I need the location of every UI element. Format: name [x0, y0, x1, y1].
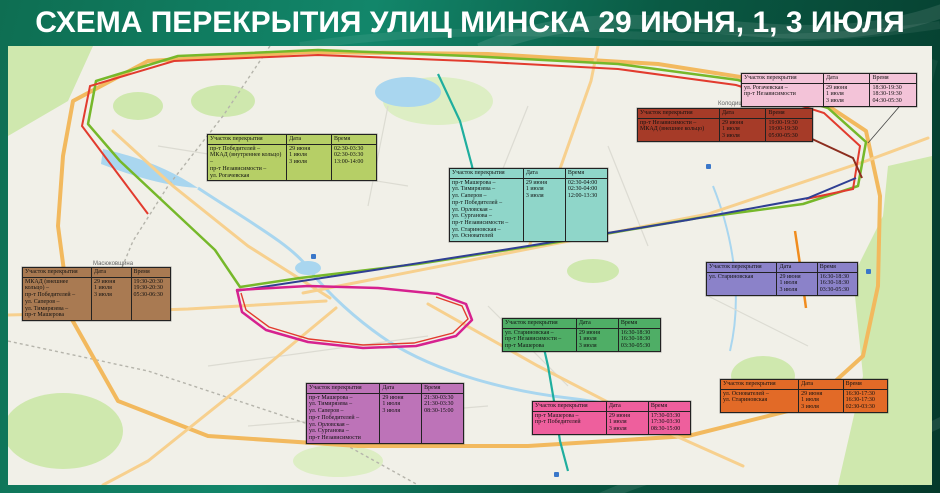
col-header-date: Дата [287, 135, 332, 145]
park-area [293, 445, 383, 477]
title-bar: СХЕМА ПЕРЕКРЫТИЯ УЛИЦ МИНСКА 29 ИЮНЯ, 1,… [0, 0, 940, 46]
col-header-section: Участок перекрытия [707, 263, 777, 273]
forest-area [8, 46, 93, 136]
closure-table-masherova-pobediteley: Участок перекрытия Дата Время пр-т Машер… [532, 401, 691, 435]
closure-streets: ул. Стариновская – пр-т Независимости – … [503, 328, 577, 351]
col-header-time: Время [332, 135, 377, 145]
col-header-section: Участок перекрытия [208, 135, 287, 145]
park-area [191, 85, 255, 117]
street-line [708, 296, 808, 346]
closure-dates: 29 июня 1 июля 3 июля [576, 328, 618, 351]
col-header-time: Время [817, 263, 857, 273]
closure-table-starinovskaya-nezavisimosti-masherova: Участок перекрытия Дата Время ул. Старин… [502, 318, 661, 352]
col-header-section: Участок перекрытия [742, 74, 824, 84]
closure-dates: 29 июня 1 июля 3 июля [92, 277, 131, 320]
col-header-section: Участок перекрытия [638, 109, 720, 119]
col-header-date: Дата [576, 319, 618, 329]
closure-dates: 29 июня 1 июля 3 июля [523, 178, 565, 241]
col-header-time: Время [648, 402, 690, 412]
col-header-time: Время [766, 109, 813, 119]
closure-times: 16:30-18:30 16:30-18:30 03:30-05:30 [817, 272, 857, 295]
closure-streets: пр-т Машерова – ул. Тимирязева – ул. Сап… [450, 178, 524, 241]
closure-table-osnovateley-starinovskaya: Участок перекрытия Дата Время ул. Основа… [720, 379, 888, 413]
closure-table-masherova-inner-ring: Участок перекрытия Дата Время пр-т Машер… [306, 383, 464, 444]
col-header-time: Время [843, 380, 887, 390]
park-area [113, 92, 163, 120]
route-red-inner-ring [241, 293, 468, 345]
closure-dates: 29 июня 1 июля 3 июля [777, 272, 817, 295]
col-header-time: Время [565, 169, 607, 179]
forest-area [838, 156, 932, 485]
closure-dates: 29 июня 1 июля 3 июля [799, 389, 843, 412]
station-icon [866, 269, 871, 274]
closure-streets: пр-т Независимости – МКАД (внешнее кольц… [638, 118, 720, 141]
closure-times: 16:30-17:30 16:30-17:30 02:30-03:30 [843, 389, 887, 412]
col-header-date: Дата [92, 268, 131, 278]
closure-dates: 29 июня 1 июля 3 июля [606, 411, 648, 434]
infographic-canvas: СХЕМА ПЕРЕКРЫТИЯ УЛИЦ МИНСКА 29 ИЮНЯ, 1,… [0, 0, 940, 493]
col-header-time: Время [422, 384, 464, 394]
station-icon [706, 164, 711, 169]
closure-table-masherova-full-route: Участок перекрытия Дата Время пр-т Машер… [449, 168, 608, 242]
closure-times: 17:30-03:30 17:30-03:30 08:30-15:00 [648, 411, 690, 434]
station-icon [311, 254, 316, 259]
closure-times: 21:30-03:30 21:30-03:30 08:30-15:00 [422, 393, 464, 443]
page-title: СХЕМА ПЕРЕКРЫТИЯ УЛИЦ МИНСКА 29 ИЮНЯ, 1,… [35, 6, 905, 40]
closure-table-mkad-outer-masherova: Участок перекрытия Дата Время МКАД (внеш… [22, 267, 171, 321]
col-header-section: Участок перекрытия [307, 384, 380, 394]
col-header-date: Дата [799, 380, 843, 390]
closure-times: 02:30-03:30 02:30-03:30 13:00-14:00 [332, 144, 377, 181]
closure-streets: МКАД (внешнее кольцо) – пр-т Победителей… [23, 277, 92, 320]
station-icon [554, 472, 559, 477]
col-header-date: Дата [523, 169, 565, 179]
closure-dates: 29 июня 1 июля 3 июля [823, 83, 870, 106]
col-header-date: Дата [606, 402, 648, 412]
park-area [567, 259, 619, 283]
reservoir [375, 77, 441, 107]
closure-table-pobediteley-mkad-inner: Участок перекрытия Дата Время пр-т Побед… [207, 134, 377, 181]
col-header-date: Дата [380, 384, 422, 394]
col-header-date: Дата [719, 109, 766, 119]
water-areas [101, 77, 684, 431]
closure-table-nezavisimosti-mkad-outer: Участок перекрытия Дата Время пр-т Незав… [637, 108, 813, 142]
closure-streets: ул. Стариновская [707, 272, 777, 295]
closure-streets: пр-т Машерова – ул. Тимирязева – ул. Сап… [307, 393, 380, 443]
closure-times: 19:00-19:30 19:00-19:30 05:00-05:30 [766, 118, 813, 141]
closure-streets: ул. Основателей – ул. Стариновская [721, 389, 799, 412]
col-header-date: Дата [823, 74, 870, 84]
col-header-time: Время [870, 74, 917, 84]
col-header-section: Участок перекрытия [23, 268, 92, 278]
col-header-section: Участок перекрытия [533, 402, 607, 412]
forest-area [8, 393, 123, 469]
closure-times: 18:30-19:30 18:30-19:30 04:30-05:30 [870, 83, 917, 106]
closure-table-rogachevskaya-nezavisimosti: Участок перекрытия Дата Время ул. Рогаче… [741, 73, 917, 107]
closure-streets: пр-т Победителей – МКАД (внутреннее коль… [208, 144, 287, 181]
closure-times: 16:30-18:30 16:30-18:30 03:30-05:30 [618, 328, 660, 351]
col-header-section: Участок перекрытия [450, 169, 524, 179]
closure-dates: 29 июня 1 июля 3 июля [719, 118, 766, 141]
closure-times: 19:30-20:30 19:30-20:30 05:30-06:30 [131, 277, 170, 320]
closure-dates: 29 июня 1 июля 3 июля [287, 144, 332, 181]
closure-streets: пр-т Машерова – пр-т Победителей [533, 411, 607, 434]
col-header-time: Время [131, 268, 170, 278]
closure-streets: ул. Рогачевская – пр-т Независимости [742, 83, 824, 106]
col-header-date: Дата [777, 263, 817, 273]
col-header-section: Участок перекрытия [503, 319, 577, 329]
col-header-section: Участок перекрытия [721, 380, 799, 390]
closure-table-starinovskaya: Участок перекрытия Дата Время ул. Старин… [706, 262, 858, 296]
col-header-time: Время [618, 319, 660, 329]
closure-dates: 29 июня 1 июля 3 июля [380, 393, 422, 443]
closure-times: 02:30-04:00 02:30-04:00 12:00-13:30 [565, 178, 607, 241]
